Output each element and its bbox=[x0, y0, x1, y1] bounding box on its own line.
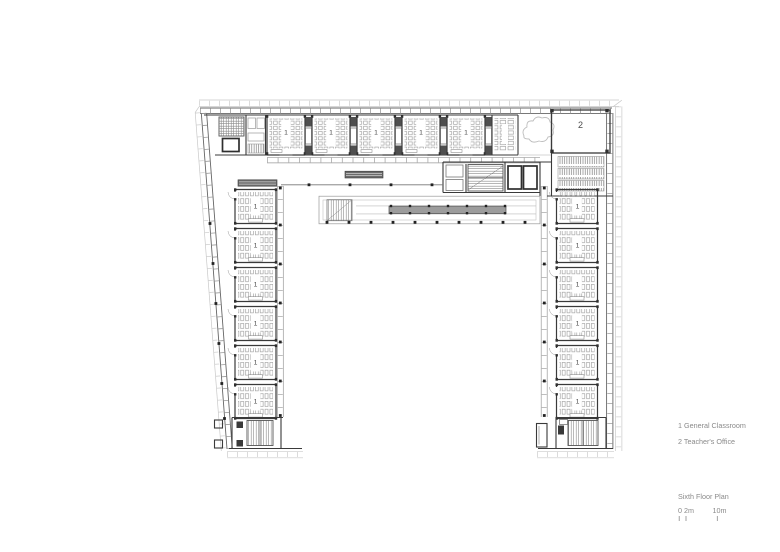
classroom bbox=[228, 344, 277, 380]
tree-icon bbox=[523, 117, 554, 142]
legend-item-classroom: 1 General Classroom bbox=[678, 421, 746, 430]
classroom bbox=[550, 188, 599, 224]
elevator-shaft bbox=[223, 139, 240, 152]
service-core bbox=[306, 117, 312, 155]
room-label: 1 bbox=[576, 360, 580, 367]
classroom bbox=[228, 305, 277, 341]
teachers-office bbox=[550, 109, 610, 153]
room-label: 1 bbox=[254, 243, 258, 250]
scale-bar bbox=[679, 516, 717, 521]
room-label: 1 bbox=[254, 321, 258, 328]
service-core bbox=[351, 117, 357, 155]
room-label: 1 bbox=[254, 399, 258, 406]
room-label: 1 bbox=[254, 360, 258, 367]
floor-plan-drawing: 1 1 1 1 1 1 1 1 1 1 1 1 1 1 1 1 1 2 1 Ge… bbox=[0, 0, 780, 552]
room-label: 1 bbox=[576, 282, 580, 289]
locker-bench bbox=[238, 180, 277, 186]
central-junction bbox=[443, 162, 552, 196]
room-label: 1 bbox=[329, 130, 333, 137]
locker-bench bbox=[345, 171, 383, 178]
room-label: 1 bbox=[576, 204, 580, 211]
classroom bbox=[228, 266, 277, 302]
drawing-title: Sixth Floor Plan bbox=[678, 492, 729, 501]
service-core bbox=[396, 117, 402, 155]
room-label: 1 bbox=[254, 204, 258, 211]
classroom bbox=[550, 344, 599, 380]
right-wing bbox=[537, 188, 614, 448]
room-label: 1 bbox=[464, 130, 468, 137]
scale-label-start: 0 2m bbox=[678, 506, 694, 515]
classroom bbox=[228, 227, 277, 263]
classroom bbox=[228, 188, 277, 224]
room-label: 1 bbox=[374, 130, 378, 137]
annotation-block: 1 General Classroom 2 Teacher's Office S… bbox=[678, 421, 746, 521]
left-wing bbox=[215, 180, 303, 449]
room-label: 1 bbox=[576, 399, 580, 406]
elevator-shaft bbox=[524, 166, 538, 189]
seminar-room bbox=[495, 118, 516, 151]
service-core bbox=[441, 117, 447, 155]
elevator-shaft bbox=[508, 166, 522, 189]
room-label: 1 bbox=[576, 321, 580, 328]
classroom bbox=[228, 383, 277, 419]
classroom bbox=[550, 305, 599, 341]
room-label: 1 bbox=[254, 282, 258, 289]
room-label: 1 bbox=[576, 243, 580, 250]
scale-label-end: 10m bbox=[713, 506, 727, 515]
room-label: 1 bbox=[419, 130, 423, 137]
classroom bbox=[550, 227, 599, 263]
teachers-office-label: 2 bbox=[578, 120, 583, 130]
service-core bbox=[486, 117, 492, 155]
classroom bbox=[550, 383, 599, 419]
stair-core-top-left bbox=[219, 117, 265, 153]
office-workstations bbox=[558, 157, 604, 192]
classroom bbox=[550, 266, 599, 302]
room-label: 1 bbox=[284, 130, 288, 137]
stair-core-bottom-right bbox=[537, 418, 614, 449]
legend-item-teachers-office: 2 Teacher's Office bbox=[678, 437, 735, 446]
stair-core-bottom-left bbox=[215, 418, 303, 449]
